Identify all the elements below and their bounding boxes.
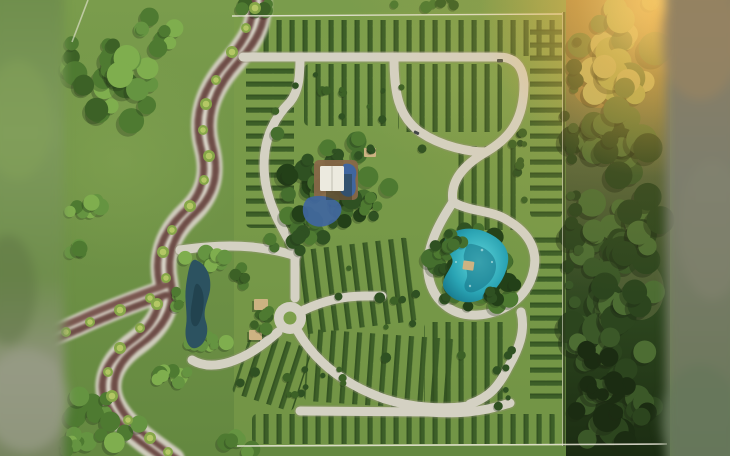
palm-crown bbox=[169, 227, 175, 233]
palm-crown bbox=[117, 307, 124, 314]
palm-crown bbox=[200, 127, 206, 133]
tree bbox=[493, 366, 501, 374]
tree bbox=[100, 411, 120, 431]
palm-crown bbox=[63, 329, 69, 335]
palm-crown bbox=[125, 417, 131, 423]
palm-crown bbox=[147, 435, 154, 442]
tree bbox=[72, 241, 88, 257]
tree bbox=[337, 214, 351, 228]
tree bbox=[506, 395, 511, 400]
tree bbox=[383, 324, 388, 329]
tree bbox=[502, 364, 509, 371]
tree bbox=[358, 166, 379, 187]
palm-crown bbox=[252, 5, 259, 12]
tree bbox=[152, 374, 164, 386]
tree bbox=[316, 230, 331, 245]
tree bbox=[365, 192, 377, 204]
tree bbox=[302, 366, 309, 373]
tree bbox=[159, 25, 171, 37]
tree bbox=[577, 341, 595, 359]
tree bbox=[210, 341, 219, 350]
tree bbox=[412, 290, 420, 298]
tree bbox=[633, 408, 651, 426]
tree bbox=[281, 187, 296, 202]
tree bbox=[503, 387, 509, 393]
tree bbox=[485, 287, 495, 297]
palm-crown bbox=[165, 449, 171, 455]
tree bbox=[240, 273, 250, 283]
aerial-render-stage: Aerial 3D master-plan render: residentia… bbox=[0, 0, 730, 456]
palm-crown bbox=[137, 325, 143, 331]
palm-crown bbox=[160, 249, 167, 256]
tree bbox=[381, 353, 391, 363]
palm-crown bbox=[117, 345, 124, 352]
tree bbox=[568, 402, 586, 420]
tree bbox=[182, 367, 192, 377]
tree bbox=[351, 131, 366, 146]
tree bbox=[313, 72, 318, 77]
palm-crown bbox=[163, 275, 169, 281]
tree bbox=[399, 296, 406, 303]
tree bbox=[380, 178, 398, 196]
tree bbox=[374, 292, 385, 303]
tree bbox=[367, 144, 375, 152]
tree bbox=[339, 87, 344, 92]
tree bbox=[297, 389, 305, 397]
palm-crown bbox=[154, 301, 161, 308]
blur-edge-right bbox=[660, 0, 730, 456]
tree bbox=[320, 373, 325, 378]
tree bbox=[587, 383, 597, 393]
palm-crown bbox=[201, 177, 207, 183]
tree bbox=[339, 113, 345, 119]
tree bbox=[457, 351, 466, 360]
tree bbox=[282, 167, 299, 184]
tree bbox=[578, 430, 597, 449]
tree bbox=[85, 98, 109, 122]
palm-crown bbox=[243, 25, 249, 31]
tree bbox=[494, 402, 503, 411]
tree bbox=[606, 377, 623, 394]
tree bbox=[600, 328, 620, 348]
tree bbox=[271, 127, 285, 141]
palm-crown bbox=[105, 369, 111, 375]
tree bbox=[390, 296, 398, 304]
palm-crown bbox=[213, 77, 219, 83]
tree bbox=[250, 320, 259, 329]
tree bbox=[104, 432, 125, 453]
tree bbox=[409, 320, 416, 327]
tree bbox=[359, 205, 370, 216]
tree bbox=[335, 293, 343, 301]
roundabout-island bbox=[284, 312, 297, 325]
tree bbox=[174, 300, 183, 309]
tree bbox=[178, 251, 192, 265]
tree bbox=[302, 154, 314, 166]
tree bbox=[346, 265, 351, 270]
tree bbox=[264, 233, 277, 246]
tree bbox=[149, 39, 168, 58]
tree bbox=[504, 351, 512, 359]
tree bbox=[250, 367, 260, 377]
tree bbox=[444, 229, 453, 238]
tree bbox=[259, 311, 269, 321]
tree bbox=[569, 296, 581, 308]
tree bbox=[599, 348, 618, 367]
tree bbox=[340, 380, 346, 386]
tree bbox=[65, 36, 79, 50]
palm-crown bbox=[229, 49, 236, 56]
palm-crown bbox=[147, 295, 153, 301]
tree bbox=[225, 435, 238, 448]
tree bbox=[235, 2, 248, 15]
tree bbox=[236, 378, 245, 387]
tree bbox=[292, 82, 298, 88]
palm-crown bbox=[187, 203, 194, 210]
tree bbox=[633, 340, 656, 363]
palm-crown bbox=[203, 101, 210, 108]
palm-crown bbox=[87, 319, 93, 325]
tree bbox=[368, 211, 378, 221]
tree bbox=[354, 151, 363, 160]
tree bbox=[332, 149, 337, 154]
tree bbox=[292, 230, 307, 245]
tree bbox=[283, 373, 292, 382]
tree bbox=[171, 287, 181, 297]
tree bbox=[372, 201, 382, 211]
tree bbox=[64, 206, 75, 217]
tree bbox=[508, 279, 521, 292]
lagoon-hut bbox=[462, 260, 474, 270]
tree bbox=[130, 415, 147, 432]
tree bbox=[136, 24, 147, 35]
tree bbox=[217, 250, 232, 265]
hedge-block bbox=[252, 414, 558, 444]
masterplan-aerial-render: Aerial 3D master-plan render: residentia… bbox=[0, 0, 730, 456]
blur-edge-left bbox=[0, 0, 68, 456]
tree bbox=[430, 240, 441, 251]
tree bbox=[291, 391, 298, 398]
tree bbox=[463, 301, 473, 311]
tree bbox=[69, 387, 89, 407]
tree bbox=[322, 86, 331, 95]
tree bbox=[107, 62, 133, 88]
tree bbox=[272, 107, 280, 115]
hedge-block bbox=[291, 237, 418, 335]
tree bbox=[219, 335, 234, 350]
tree bbox=[614, 431, 637, 454]
palm-crown bbox=[109, 393, 116, 400]
tree bbox=[610, 406, 624, 420]
tree bbox=[448, 239, 460, 251]
tree bbox=[260, 322, 273, 335]
tree bbox=[336, 367, 342, 373]
palm-crown bbox=[206, 153, 213, 160]
tree bbox=[303, 384, 309, 390]
tree bbox=[83, 195, 99, 211]
tree bbox=[73, 75, 94, 96]
